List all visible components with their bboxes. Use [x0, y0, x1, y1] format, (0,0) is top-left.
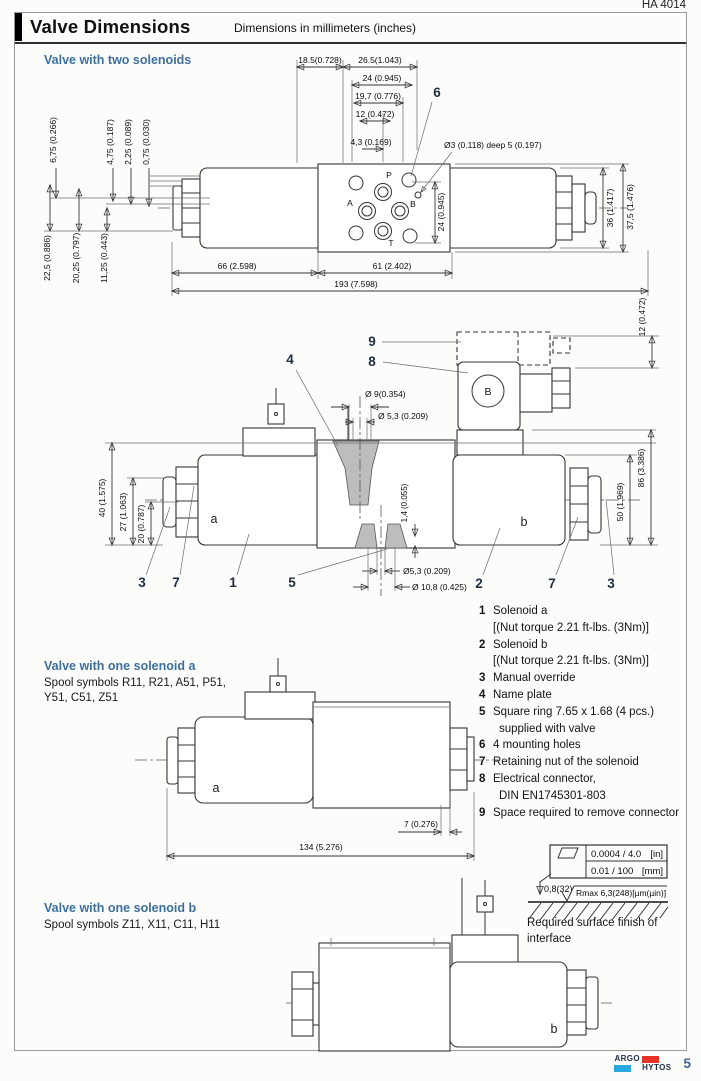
plug-symbol [268, 404, 284, 424]
dim-label: 20,25 (0.797) [71, 233, 81, 284]
port-label-t: T [388, 238, 393, 248]
solenoid-b-letter: b [521, 515, 528, 529]
flatness-symbol [558, 848, 578, 858]
callout-6: 6 [433, 85, 441, 100]
drawing-one-solenoid-b: b [286, 878, 612, 1051]
pin-hole-note: Ø3 (0.118) deep 5 (0.197) [444, 140, 542, 150]
callout-7: 7 [172, 575, 180, 590]
callout-3b: 3 [607, 576, 615, 591]
page-footer: ARGO HYTOS 5 [614, 1055, 691, 1072]
dim-label: 11,25 (0.443) [99, 233, 109, 283]
dim-label: Ø 10,8 (0.425) [412, 582, 467, 592]
dim-label: 24 (0.945) [436, 192, 446, 231]
manual-override-cap [586, 977, 598, 1029]
callout-1: 1 [229, 575, 237, 590]
dim-label: 134 (5.276) [299, 842, 343, 852]
dim-label: 193 (7.598) [334, 279, 378, 289]
drawing-one-solenoid-a: a 7 (0.276) 134 (5.276) [135, 658, 500, 861]
dim-label: 24 (0.945) [363, 73, 402, 83]
port-label-p: P [386, 170, 392, 180]
logo-blue-block [614, 1065, 631, 1072]
terminal-box [245, 692, 315, 719]
drawing-side-view-connector: Ø 9(0.354) Ø 5,3 (0.209) B [97, 297, 659, 596]
manual-override-cap [585, 192, 596, 224]
left-armature-cap [173, 186, 182, 230]
manual-override-cap [167, 737, 178, 784]
mounting-face-top-view [318, 164, 450, 252]
datasheet-page: HA 4014 Valve Dimensions Dimensions in m… [0, 0, 701, 1081]
flatness-value-mm: 0.01 / 100 [591, 866, 633, 877]
retaining-nut-left [176, 467, 198, 537]
callout-9: 9 [368, 334, 376, 349]
dim-label: 6,75 (0.266) [48, 117, 58, 163]
dim-label: 20 (0.787) [136, 504, 146, 543]
page-number: 5 [683, 1056, 691, 1071]
drawing-two-solenoids: P A B T 18.5(0.728) 26.5(1.043) 24 (0.94… [42, 55, 648, 296]
valve-center-body [317, 440, 455, 548]
logo-hytos-text: HYTOS [642, 1064, 671, 1072]
valve-body [319, 943, 450, 1051]
surface-finish-block: 0.0004 / 4.0 [in] 0.01 / 100 [mm] 0,8(32… [528, 845, 668, 920]
blanking-plug [292, 972, 313, 1036]
dim-label: 12 (0.472) [356, 109, 395, 119]
dim-label: 40 (1.575) [97, 478, 107, 517]
callout-5: 5 [288, 575, 296, 590]
dim-label: 26.5(1.043) [358, 55, 402, 65]
dim-label: 4,75 (0.187) [105, 119, 115, 165]
technical-drawings: P A B T 18.5(0.728) 26.5(1.043) 24 (0.94… [0, 0, 701, 1081]
retaining-nut [567, 970, 586, 1035]
dim-label: 61 (2.402) [373, 261, 412, 271]
dim-label: 50 (1.969) [615, 482, 625, 521]
connector-label: B [484, 386, 491, 398]
plug-symbol [270, 676, 286, 692]
valve-body [313, 702, 450, 808]
flatness-value-in: 0.0004 / 4.0 [591, 849, 641, 860]
dim-label: Ø 9(0.354) [365, 389, 406, 399]
roughness-value: 0,8(32) [544, 884, 573, 894]
dim-label: 0,75 (0.030) [141, 119, 151, 165]
callout-7b: 7 [548, 576, 556, 591]
dim-label: 12 (0.472) [637, 297, 647, 336]
connector-removal-space [457, 332, 550, 365]
dim-label: 18.5(0.728) [298, 55, 342, 65]
dim-label: 2,25 (0.089) [123, 119, 133, 165]
dim-label: Ø5,3 (0.209) [403, 566, 451, 576]
dim-label: 66 (2.598) [218, 261, 257, 271]
dim-label: 37,5 (1.476) [625, 184, 635, 230]
blanking-plug [450, 728, 467, 790]
solenoid-a-terminal-box [243, 428, 315, 456]
solenoid-b-body [450, 962, 567, 1047]
solenoid-a-letter: a [211, 512, 218, 526]
solenoid-b-terminal-box [457, 430, 523, 455]
dim-label: 19,7 (0.776) [355, 91, 401, 101]
argo-hytos-logo: ARGO HYTOS [614, 1055, 671, 1072]
flatness-unit-mm: [mm] [642, 866, 663, 877]
callout-8: 8 [368, 354, 376, 369]
solenoid-b-body [453, 455, 565, 545]
hatching [528, 903, 668, 920]
dim-label: 4,3 (0.169) [350, 137, 391, 147]
callout-4: 4 [286, 352, 294, 367]
rmax-value: Rmax 6,3(248)[µm(µin)] [576, 888, 666, 898]
dim-label: 27 (1.063) [118, 492, 128, 531]
port-label-a: A [347, 198, 353, 208]
logo-red-block [642, 1056, 659, 1063]
dim-label: 22,5 (0.886) [42, 235, 52, 281]
port-label-b: B [410, 199, 416, 209]
flatness-unit-in: [in] [650, 849, 663, 860]
dim-label: 86 (3.386) [636, 448, 646, 487]
plug-symbol [477, 896, 493, 912]
logo-argo-text: ARGO [614, 1055, 640, 1063]
cable-gland [552, 368, 570, 408]
dim-label: Ø 5,3 (0.209) [378, 411, 428, 421]
dim-label: 36 (1.417) [605, 188, 615, 227]
dim-label: 7 (0.276) [404, 819, 438, 829]
solenoid-b-letter: b [551, 1022, 558, 1036]
solenoid-a-letter: a [213, 781, 220, 795]
manual-override-right [588, 476, 601, 533]
callout-2: 2 [475, 576, 483, 591]
dim-label: 1,4 (0.055) [400, 483, 409, 522]
callout-3: 3 [138, 575, 146, 590]
